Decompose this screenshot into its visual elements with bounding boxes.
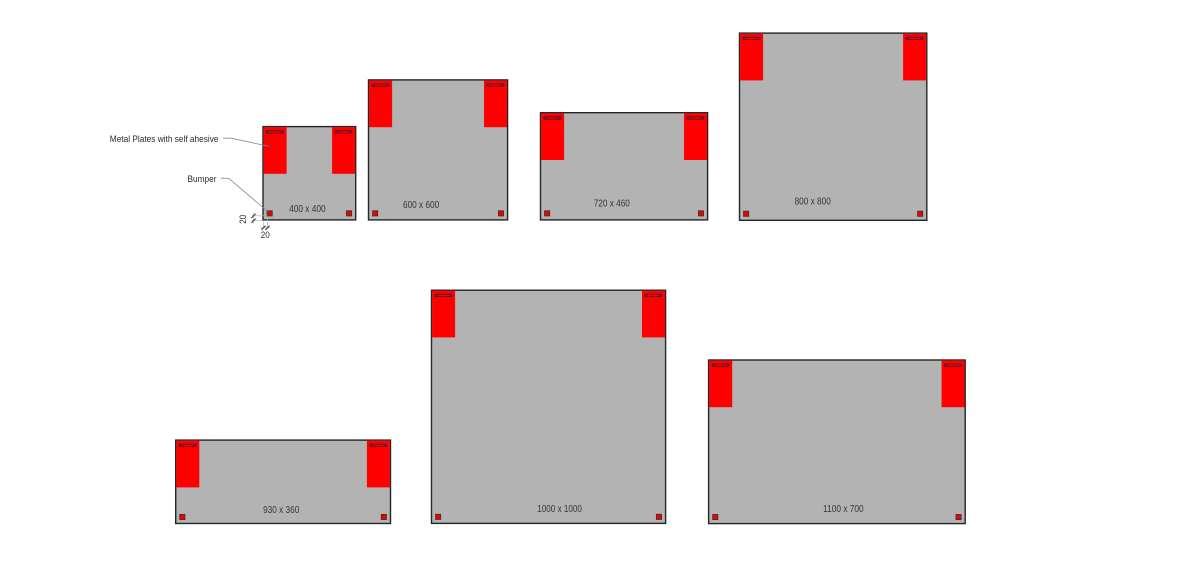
svg-text:20: 20 [261,230,270,240]
svg-text:930 x 360: 930 x 360 [263,505,300,516]
svg-text:1100 x 700: 1100 x 700 [823,504,864,515]
svg-text:600 x 600: 600 x 600 [403,200,440,211]
svg-text:20: 20 [238,215,248,224]
svg-text:800 x 800: 800 x 800 [795,197,832,208]
svg-text:400 x 400: 400 x 400 [289,204,326,215]
svg-text:1000 x 1000: 1000 x 1000 [537,504,582,515]
svg-text:720 x 460: 720 x 460 [594,198,631,209]
svg-text:Bumper: Bumper [188,174,217,185]
svg-text:Metal Plates with self ahesive: Metal Plates with self ahesive [110,134,219,145]
